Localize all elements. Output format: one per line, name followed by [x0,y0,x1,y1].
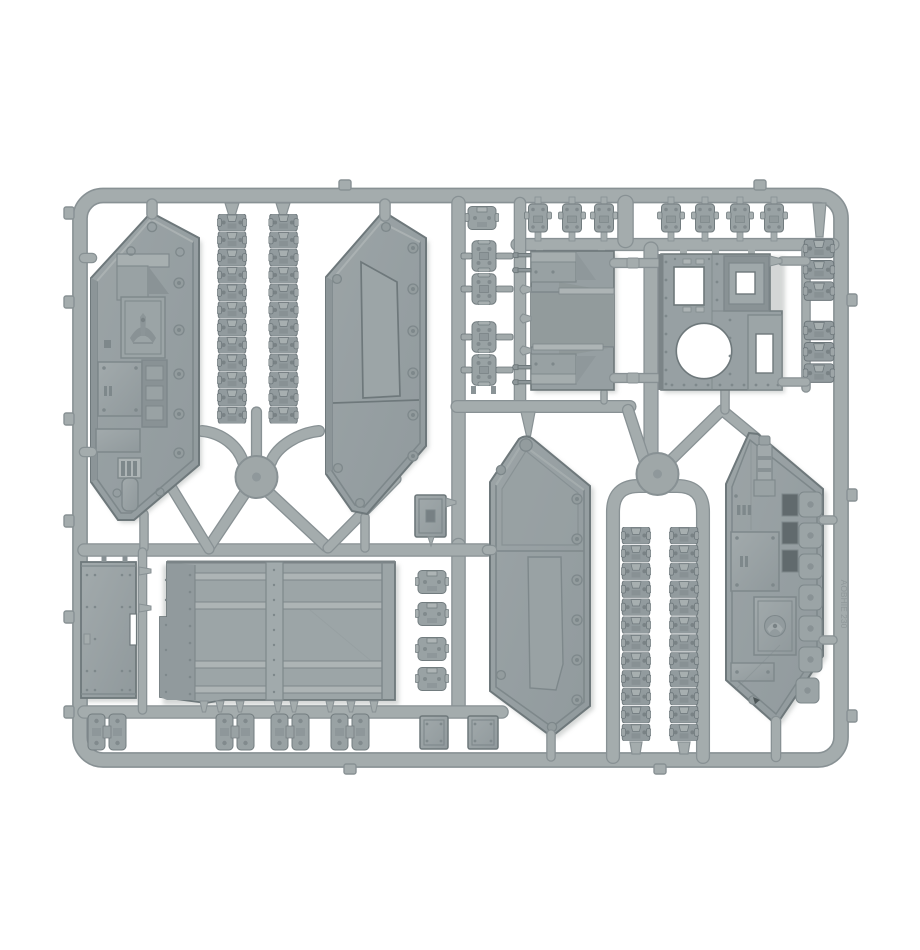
svg-text:AOBHIE 230: AOBHIE 230 [839,580,849,629]
